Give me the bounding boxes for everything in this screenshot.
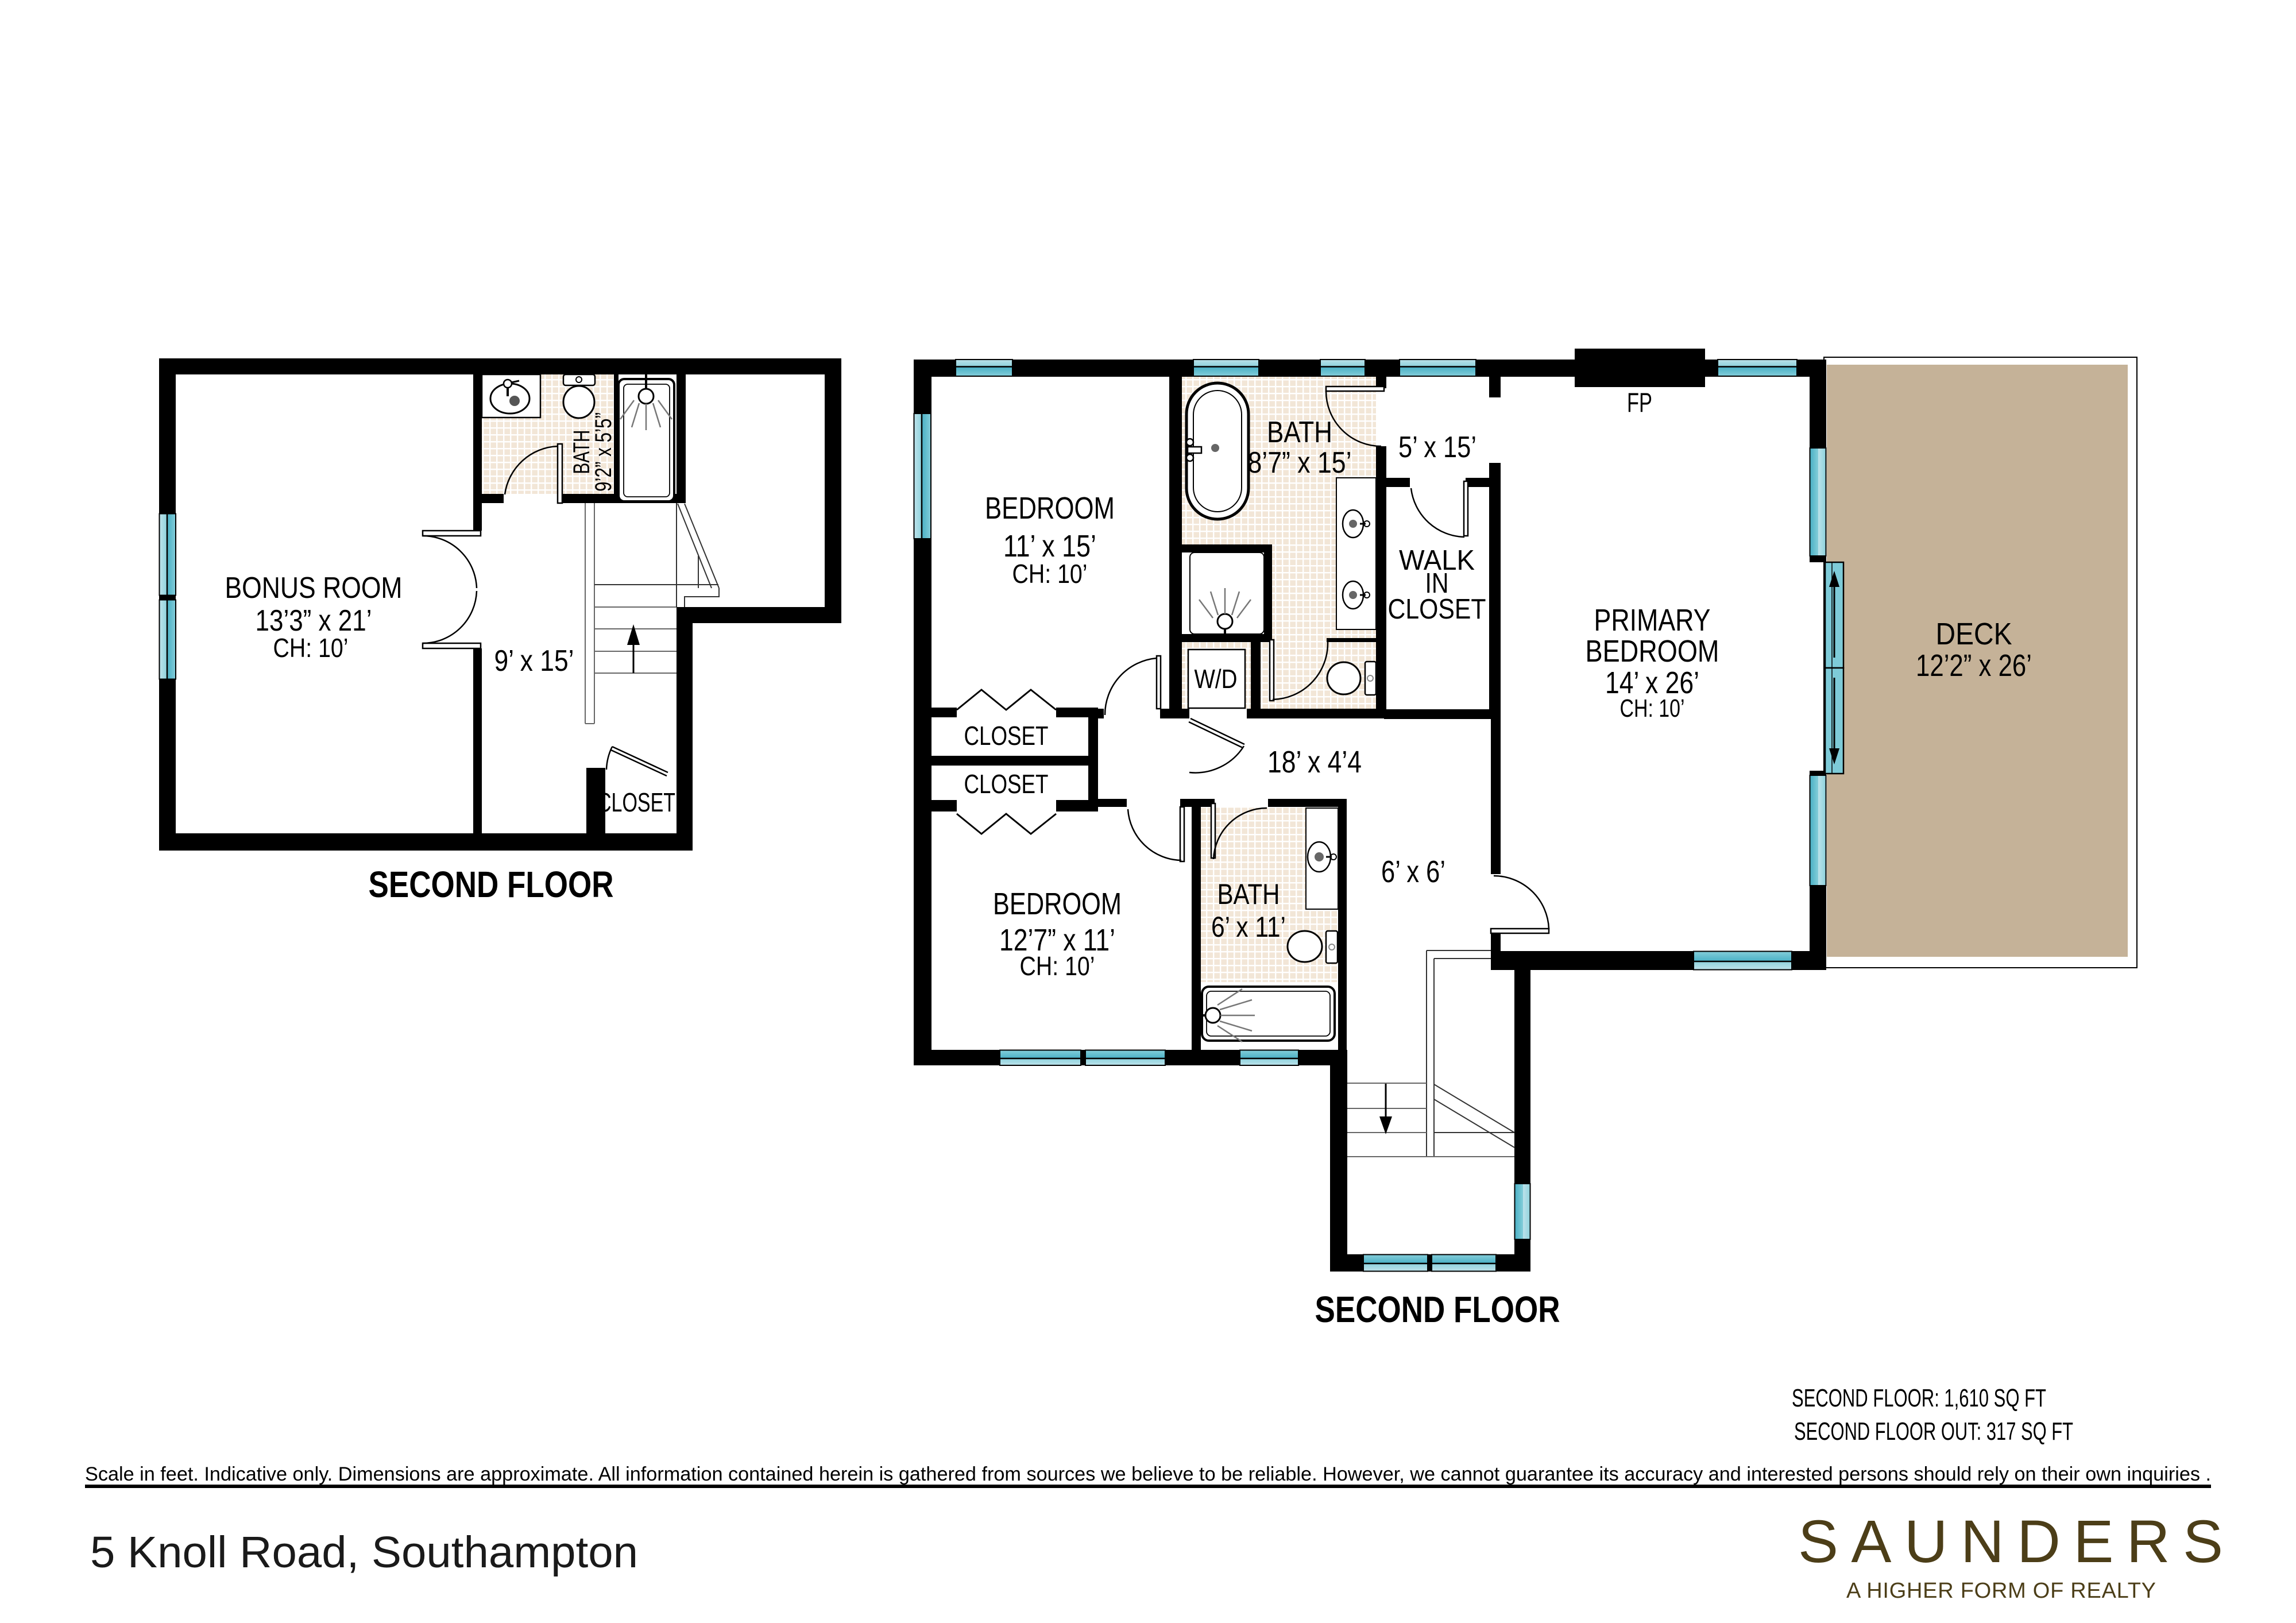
svg-text:8’7” x 15’: 8’7” x 15’ bbox=[1248, 446, 1352, 480]
svg-text:A HIGHER FORM OF REALTY: A HIGHER FORM OF REALTY bbox=[1846, 1579, 2156, 1603]
svg-text:6’ x 11’: 6’ x 11’ bbox=[1211, 911, 1286, 943]
svg-text:DECK: DECK bbox=[1936, 617, 2012, 651]
svg-text:CLOSET: CLOSET bbox=[964, 721, 1049, 751]
svg-text:SECOND FLOOR OUT: 317 SQ FT: SECOND FLOOR OUT: 317 SQ FT bbox=[1794, 1417, 2073, 1446]
svg-text:6’ x 6’: 6’ x 6’ bbox=[1381, 855, 1445, 889]
svg-text:W/D: W/D bbox=[1195, 664, 1238, 694]
svg-text:CH: 10’: CH: 10’ bbox=[1012, 559, 1088, 589]
svg-text:12’2” x 26’: 12’2” x 26’ bbox=[1916, 648, 2032, 683]
svg-text:SECOND FLOOR: SECOND FLOOR bbox=[1315, 1289, 1560, 1330]
svg-text:CH: 10’: CH: 10’ bbox=[273, 633, 349, 663]
svg-text:SECOND FLOOR: SECOND FLOOR bbox=[369, 864, 614, 905]
svg-text:BEDROOM: BEDROOM bbox=[1586, 634, 1719, 668]
svg-text:BONUS ROOM: BONUS ROOM bbox=[225, 571, 403, 605]
svg-text:CH: 10’: CH: 10’ bbox=[1620, 694, 1685, 722]
svg-text:11’ x 15’: 11’ x 15’ bbox=[1003, 529, 1096, 563]
svg-text:18’ x 4’4: 18’ x 4’4 bbox=[1267, 745, 1362, 779]
svg-text:BATH: BATH bbox=[1217, 878, 1280, 910]
svg-text:Scale in feet. Indicative only: Scale in feet. Indicative only. Dimensio… bbox=[85, 1463, 2211, 1485]
svg-text:CLOSET: CLOSET bbox=[597, 787, 675, 817]
svg-text:CLOSET: CLOSET bbox=[964, 769, 1049, 799]
svg-text:CLOSET: CLOSET bbox=[1388, 594, 1486, 625]
svg-text:9’ x 15’: 9’ x 15’ bbox=[494, 644, 574, 678]
svg-text:FP: FP bbox=[1627, 387, 1652, 418]
svg-text:CH: 10’: CH: 10’ bbox=[1020, 951, 1095, 981]
svg-text:PRIMARY: PRIMARY bbox=[1594, 603, 1711, 637]
svg-text:BEDROOM: BEDROOM bbox=[993, 887, 1122, 921]
svg-text:9’2” x 5’5”: 9’2” x 5’5” bbox=[591, 412, 616, 492]
svg-text:5 Knoll Road, Southampton: 5 Knoll Road, Southampton bbox=[90, 1528, 638, 1577]
svg-text:SAUNDERS: SAUNDERS bbox=[1798, 1508, 2223, 1575]
svg-text:5’ x 15’: 5’ x 15’ bbox=[1398, 431, 1476, 464]
svg-text:SECOND FLOOR: 1,610 SQ FT: SECOND FLOOR: 1,610 SQ FT bbox=[1792, 1384, 2046, 1412]
svg-text:BEDROOM: BEDROOM bbox=[985, 491, 1115, 525]
svg-text:BATH: BATH bbox=[1267, 416, 1332, 449]
